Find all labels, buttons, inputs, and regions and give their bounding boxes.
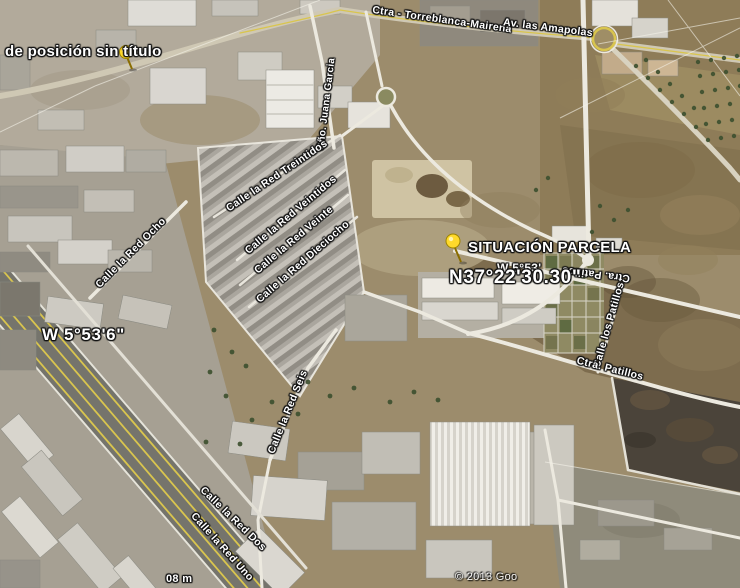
satellite-map-viewport[interactable]: de posición sin título SITUACIÓN PARCELA… <box>0 0 740 588</box>
placemark-label-untitled[interactable]: de posición sin título <box>5 44 162 59</box>
scale-text-fragment: 08 m <box>166 574 192 585</box>
satellite-imagery <box>0 0 740 588</box>
coordinate-west-label: W 5°53'6" <box>42 326 125 343</box>
placemark-label-situacion-parcela[interactable]: SITUACIÓN PARCELA <box>468 240 631 255</box>
coordinate-north-label: N37°22'30.30" <box>449 268 581 287</box>
copyright-watermark: © 2013 Goo <box>455 572 517 583</box>
